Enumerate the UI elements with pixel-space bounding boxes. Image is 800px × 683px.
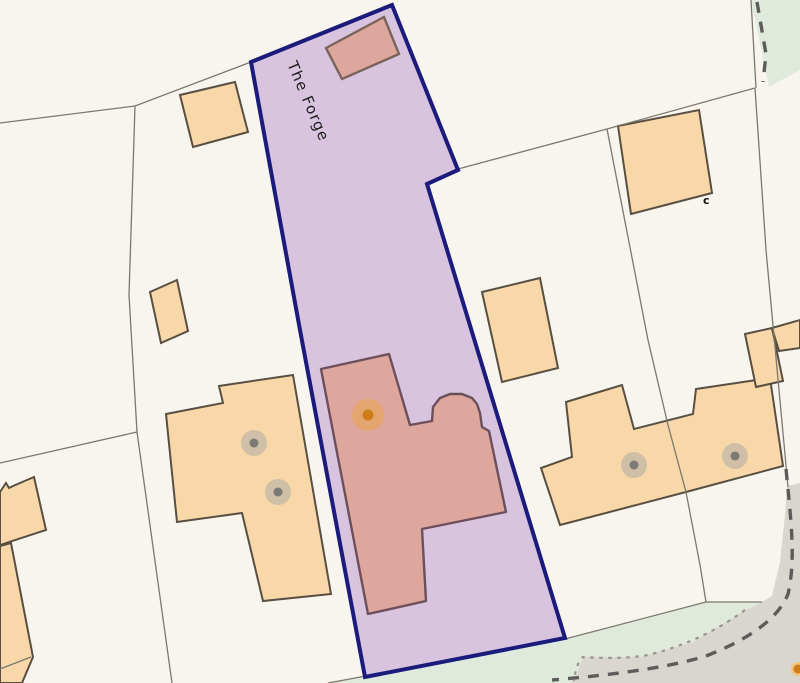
feature-dot-core bbox=[630, 461, 639, 470]
feature-dot-core bbox=[731, 452, 740, 461]
feature-dot bbox=[722, 443, 748, 469]
map-view: The Forge c bbox=[0, 0, 800, 683]
feature-dot-core bbox=[250, 439, 259, 448]
feature-dot-core bbox=[274, 488, 283, 497]
feature-dot bbox=[241, 430, 267, 456]
corner-mark: c bbox=[703, 194, 710, 207]
map-canvas[interactable]: The Forge c bbox=[0, 0, 800, 683]
orange-marker[interactable] bbox=[352, 399, 384, 431]
orange-marker-core bbox=[363, 410, 374, 421]
feature-dot bbox=[265, 479, 291, 505]
feature-dot bbox=[621, 452, 647, 478]
